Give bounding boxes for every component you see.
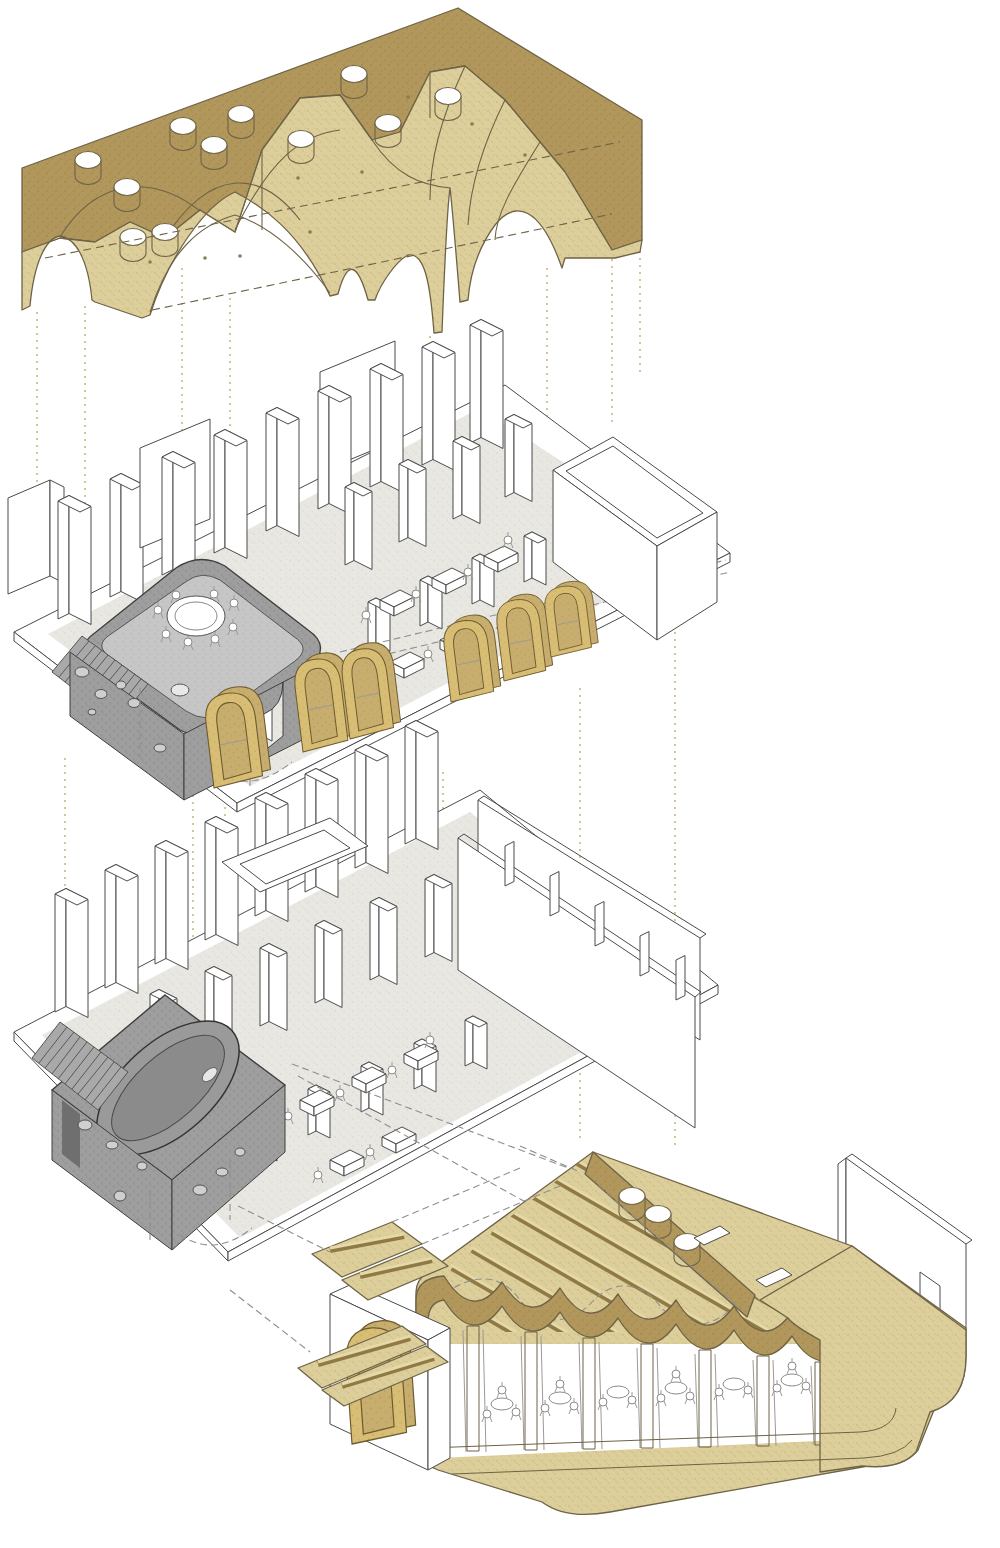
arch-window-frame (542, 579, 599, 657)
upper-floor-layer (8, 320, 730, 813)
ground-floor-layer (230, 1146, 972, 1514)
ceiling-layer (22, 8, 642, 333)
diagram-canvas (0, 0, 1000, 1548)
column-stub (171, 684, 189, 696)
exploded-axonometric-diagram (0, 0, 1000, 1548)
